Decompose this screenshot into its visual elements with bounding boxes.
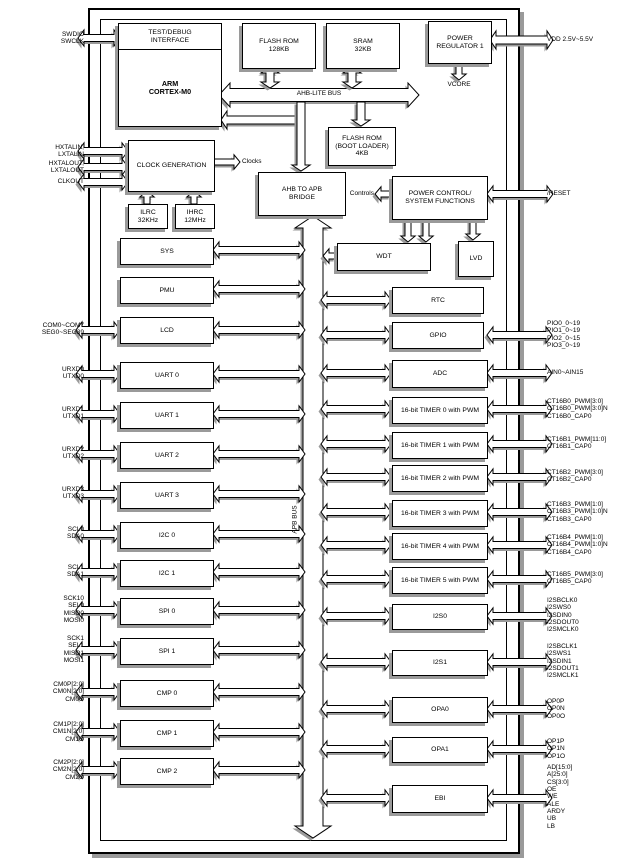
block-uart0: UART 0 xyxy=(120,362,214,389)
block-opa1: OPA1 xyxy=(392,737,488,763)
ahb-lite-bus-label: AHB-LITE BUS xyxy=(256,90,382,97)
pins-xtal-in: HXTALIN, LXTALIN xyxy=(55,144,84,159)
block-timer2: 16-bit TIMER 2 with PWM xyxy=(392,465,488,492)
block-timer4: 16-bit TIMER 4 with PWM xyxy=(392,533,488,560)
pins-opa0: OP0P OP0N OP0O xyxy=(547,698,565,720)
block-sram: SRAM 32KB xyxy=(326,23,400,69)
pins-timer2: CT16B2_PWM[3:0] CT16B2_CAP0 xyxy=(547,469,603,484)
block-gpio: GPIO xyxy=(392,322,484,349)
pins-i2s1: I2SBCLK1 I2SWS1 I2SDIN1 I2SDOUT1 I2SMCLK… xyxy=(547,643,579,680)
block-spi0: SPI 0 xyxy=(120,598,214,625)
vcore-label: VCORE xyxy=(444,81,474,88)
pins-uart2: URXD2 UTXD2 xyxy=(62,446,84,461)
pins-opa1: OP1P OP1N OP1O xyxy=(547,738,565,760)
block-lcd: LCD xyxy=(120,317,214,344)
pins-lcd: COM0~COM7 SEG0~SEG39 xyxy=(42,322,84,337)
block-timer5: 16-bit TIMER 5 with PWM xyxy=(392,567,488,594)
block-timer1: 16-bit TIMER 1 with PWM xyxy=(392,432,488,459)
block-timer3: 16-bit TIMER 3 with PWM xyxy=(392,500,488,527)
block-ihrc: IHRC 12MHz xyxy=(175,204,215,229)
clocks-label: Clocks xyxy=(242,158,262,165)
block-ilrc: ILRC 32KHz xyxy=(128,204,168,229)
block-cmp1: CMP 1 xyxy=(120,720,214,747)
pins-spi1: SCK1 SEL1 MISO1 MOSI1 xyxy=(64,635,84,664)
block-opa0: OPA0 xyxy=(392,697,488,723)
bus-wires-layer xyxy=(0,0,627,864)
pins-timer1: CT16B1_PWM[11:0] CT16B1_CAP0 xyxy=(547,436,606,451)
pins-swd: SWDIO SWCLK xyxy=(61,31,84,46)
block-test-debug-interface: TEST/DEBUG INTERFACE xyxy=(118,23,222,51)
block-uart1: UART 1 xyxy=(120,402,214,429)
block-power-regulator: POWER REGULATOR 1 xyxy=(428,21,492,64)
pins-cmp2: CM2P[2:0] CM2N[2:0] CM2O xyxy=(53,759,84,781)
block-arm-cortex-m0: ARM CORTEX-M0 xyxy=(118,49,222,127)
pins-ebi: AD[15:0] A[25:0] CS[3:0] OE WE ALE ARDY … xyxy=(547,764,572,830)
block-rtc: RTC xyxy=(392,287,484,314)
pins-cmp0: CM0P[2:0] CM0N[2:0] CM0O xyxy=(53,681,84,703)
mcu-block-diagram: TEST/DEBUG INTERFACE ARM CORTEX-M0 FLASH… xyxy=(0,0,627,864)
block-clock-generation: CLOCK GENERATION xyxy=(128,140,215,192)
pins-i2s0: I2SBCLK0 I2SWS0 I2SDIN0 I2SDOUT0 I2SMCLK… xyxy=(547,597,579,634)
pins-timer0: CT16B0_PWM[3:0] CT16B0_PWM[3:0]N CT16B0_… xyxy=(547,398,608,420)
pins-timer3: CT16B3_PWM[1:0] CT16B3_PWM[1:0]N CT16B3_… xyxy=(547,501,608,523)
block-ebi: EBI xyxy=(392,785,488,813)
block-timer0: 16-bit TIMER 0 with PWM xyxy=(392,397,488,424)
block-flash-rom: FLASH ROM 128KB xyxy=(242,23,316,69)
pins-clkout: CLKOUT xyxy=(58,178,84,185)
block-i2c0: I2C 0 xyxy=(120,522,214,549)
block-lvd: LVD xyxy=(458,241,494,277)
block-pmu: PMU xyxy=(120,277,214,304)
pins-i2c1: SCL1 SDA1 xyxy=(67,564,84,579)
block-sys: SYS xyxy=(120,238,214,265)
block-wdt: WDT xyxy=(337,243,431,271)
block-power-control: POWER CONTROL/ SYSTEM FUNCTIONS xyxy=(392,176,488,220)
pins-i2c0: SCL0 SDA0 xyxy=(67,526,84,541)
pins-uart0: URXD0 UTXD0 xyxy=(62,366,84,381)
block-adc: ADC xyxy=(392,360,488,388)
controls-label: Controls xyxy=(340,190,374,197)
pins-timer5: CT16B5_PWM[3:0] CT16B5_CAP0 xyxy=(547,571,603,586)
pins-gpio: PIO0_0~19 PIO1_0~19 PIO2_0~15 PIO3_0~19 xyxy=(547,320,580,349)
pins-uart1: URXD1 UTXD1 xyxy=(62,406,84,421)
block-i2c1: I2C 1 xyxy=(120,560,214,587)
pins-uart3: URXD3 UTXD3 xyxy=(62,486,84,501)
block-i2s1: I2S1 xyxy=(392,650,488,676)
apb-bus-label: APB BUS xyxy=(292,495,299,545)
block-spi1: SPI 1 xyxy=(120,638,214,665)
pins-spi0: SCK10 SEL0 MISO0 MOSI0 xyxy=(63,595,84,624)
pins-adc: AIN0~AIN15 xyxy=(547,369,583,376)
pins-cmp1: CM1P[2:0] CM1N[2:0] CM1O xyxy=(53,721,84,743)
block-uart3: UART 3 xyxy=(120,482,214,509)
pins-reset: /RESET xyxy=(547,190,570,197)
block-ahb-apb-bridge: AHB TO APB BRIDGE xyxy=(258,172,346,216)
block-uart2: UART 2 xyxy=(120,442,214,469)
block-i2s0: I2S0 xyxy=(392,604,488,630)
pins-timer4: CT16B4_PWM[1:0] CT16B4_PWM[1:0]N CT16B4_… xyxy=(547,534,608,556)
block-cmp0: CMP 0 xyxy=(120,680,214,707)
block-boot-rom: FLASH ROM (BOOT LOADER) 4KB xyxy=(328,127,396,166)
pins-vdd: VDD 2.5V~5.5V xyxy=(547,36,593,43)
block-cmp2: CMP 2 xyxy=(120,758,214,785)
pins-xtal-out: HXTALOUT, LXTALOUT xyxy=(49,160,84,175)
